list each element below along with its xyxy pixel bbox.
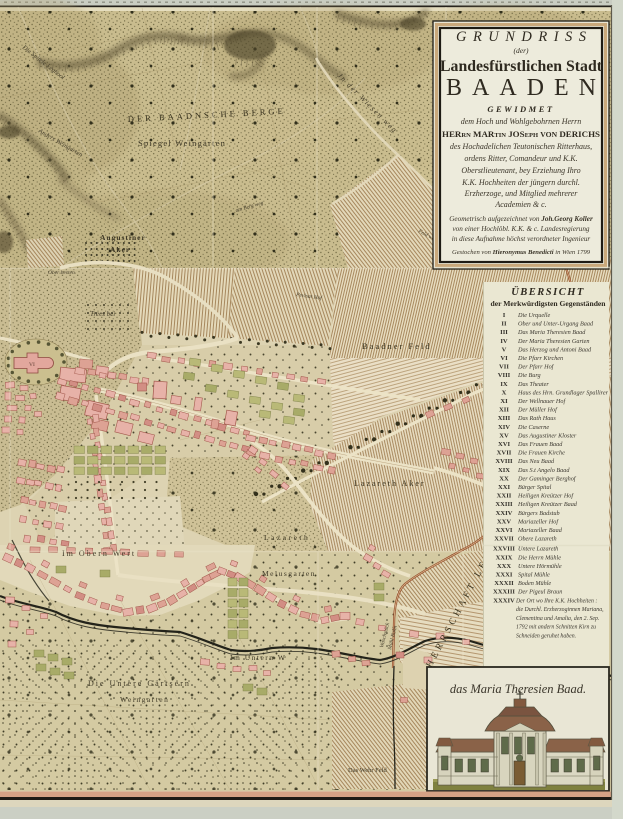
svg-text:Im Untern W: Im Untern W — [230, 653, 286, 662]
svg-text:XIX: XIX — [498, 467, 510, 474]
svg-text:II: II — [501, 321, 507, 328]
svg-text:Das Herzog und Antoni Baad: Das Herzog und Antoni Baad — [517, 346, 592, 353]
svg-text:VIII: VIII — [498, 372, 511, 379]
svg-text:Das Theater: Das Theater — [517, 381, 549, 388]
svg-text:XII: XII — [499, 407, 509, 414]
svg-text:in diese Aufnahme höchst veror: in diese Aufnahme höchst verordneter Ing… — [452, 235, 591, 243]
svg-text:Untere Hörmühle: Untere Hörmühle — [518, 563, 562, 570]
svg-text:ÜBERSICHT: ÜBERSICHT — [511, 285, 585, 298]
svg-text:Mariazeller Baad: Mariazeller Baad — [517, 527, 563, 534]
svg-text:XIII: XIII — [498, 415, 511, 422]
svg-text:Das Wehr Feld: Das Wehr Feld — [348, 767, 387, 774]
svg-text:Spital Mühle: Spital Mühle — [518, 572, 550, 579]
svg-text:Obere Lazareth: Obere Lazareth — [518, 536, 557, 543]
svg-text:Lazareth Aker: Lazareth Aker — [354, 479, 426, 488]
svg-text:Boden Mühle: Boden Mühle — [518, 580, 551, 587]
svg-text:Die Untere Gärtsern: Die Untere Gärtsern — [88, 679, 191, 688]
svg-text:Der Maria Theresien Garten: Der Maria Theresien Garten — [517, 338, 589, 345]
svg-text:IV: IV — [500, 338, 508, 345]
svg-text:III: III — [500, 329, 508, 336]
svg-text:VI: VI — [500, 355, 508, 362]
svg-text:XXI: XXI — [498, 484, 511, 491]
svg-text:Der Gaminger Berghof: Der Gaminger Berghof — [517, 475, 577, 482]
svg-text:(der): (der) — [514, 46, 529, 55]
svg-text:Der Ort wo Ihre K.K. Hochheite: Der Ort wo Ihre K.K. Hochheiten : — [515, 598, 597, 604]
svg-text:XXIX: XXIX — [496, 554, 513, 561]
svg-text:Die Frauen Kirche: Die Frauen Kirche — [517, 450, 565, 457]
svg-text:Baadner Feld: Baadner Feld — [362, 341, 432, 351]
svg-text:XXXIII: XXXIII — [493, 589, 515, 596]
svg-text:Academien & c.: Academien & c. — [494, 200, 546, 209]
svg-text:Der Wellnauer Hof: Der Wellnauer Hof — [517, 398, 566, 405]
svg-text:der Merkwürdigsten Gegenstände: der Merkwürdigsten Gegenständen — [490, 299, 606, 308]
svg-text:Geometrisch aufgezeichnet von: Geometrisch aufgezeichnet von Joh.Georg … — [449, 215, 593, 223]
svg-text:die Durchl. Erzherzoginnen Mar: die Durchl. Erzherzoginnen Mariana, — [516, 607, 604, 613]
svg-text:Landesfürstlichen Stadt: Landesfürstlichen Stadt — [440, 58, 603, 75]
svg-text:XXX: XXX — [497, 563, 512, 570]
svg-text:von einer Hochlöbl. K.K. & c.: von einer Hochlöbl. K.K. & c. Landesregi… — [452, 225, 589, 233]
svg-text:VII: VII — [499, 364, 509, 371]
svg-text:Lazareth: Lazareth — [264, 533, 310, 542]
svg-text:K.K. Hochheiten der jüngern du: K.K. Hochheiten der jüngern durchl. — [461, 178, 580, 187]
svg-text:Heiligen Kreützer Hof: Heiligen Kreützer Hof — [517, 493, 574, 500]
svg-text:Bürgers Badstub: Bürgers Badstub — [518, 510, 560, 517]
svg-text:XXIII: XXIII — [495, 501, 513, 508]
svg-text:1792 mit andern Schnitten Kirn: 1792 mit andern Schnitten Kirn zu — [516, 625, 596, 631]
svg-text:Erzherzoge, und Mitglied mehre: Erzherzoge, und Mitglied mehrerer — [464, 189, 579, 198]
svg-text:Oberstlieutenant, bey Erziehun: Oberstlieutenant, bey Erziehung Ihro — [461, 166, 580, 175]
svg-text:Im Obern Wert: Im Obern Wert — [62, 549, 136, 558]
svg-text:Das Maria Theresien Baad: Das Maria Theresien Baad — [517, 329, 586, 336]
svg-text:Ober und Unter-Urgang Baad: Ober und Unter-Urgang Baad — [518, 321, 594, 328]
svg-text:XV: XV — [499, 432, 509, 439]
svg-text:Schneiden geruhet haben.: Schneiden geruhet haben. — [516, 634, 576, 640]
svg-text:XXXI: XXXI — [496, 572, 513, 579]
svg-text:Untere Lazareth: Untere Lazareth — [518, 546, 558, 553]
svg-text:Das Frauen Baad: Das Frauen Baad — [517, 441, 563, 448]
svg-text:Aker: Aker — [110, 245, 130, 254]
svg-text:VI: VI — [29, 362, 35, 368]
svg-text:XX: XX — [499, 475, 509, 482]
svg-text:XVIII: XVIII — [495, 458, 513, 465]
svg-text:GEWIDMET: GEWIDMET — [487, 104, 554, 114]
svg-text:XXVI: XXVI — [496, 527, 513, 534]
svg-text:Trees bei: Trees bei — [90, 310, 115, 318]
svg-text:Die Pfarr Kirchen: Die Pfarr Kirchen — [517, 355, 563, 362]
svg-text:Der Müller Hof: Der Müller Hof — [517, 407, 558, 414]
svg-text:ordens Ritter, Comandeur und K: ordens Ritter, Comandeur und K.K. — [464, 154, 577, 163]
svg-text:Die Urquelle: Die Urquelle — [517, 312, 550, 319]
svg-text:Gestochen von Hieronymus Bened: Gestochen von Hieronymus Benedicti in Wi… — [452, 249, 591, 256]
svg-text:XXXII: XXXII — [494, 580, 514, 587]
svg-text:XI: XI — [500, 398, 508, 405]
svg-text:Der Pigeul Braun: Der Pigeul Braun — [517, 589, 562, 596]
svg-text:Bürger Spital: Bürger Spital — [518, 484, 552, 491]
svg-text:des Hochadelichen Teutonischen: des Hochadelichen Teutonischen Ritterhau… — [450, 142, 592, 151]
svg-text:GRUNDRISS: GRUNDRISS — [456, 29, 587, 45]
svg-text:Melusgarten: Melusgarten — [262, 569, 316, 578]
svg-text:XXVIII: XXVIII — [493, 546, 515, 553]
svg-text:Die Burg: Die Burg — [517, 372, 541, 379]
svg-text:XXII: XXII — [497, 493, 512, 500]
svg-text:Das Rath Haus: Das Rath Haus — [517, 415, 556, 422]
svg-text:XXV: XXV — [497, 518, 512, 525]
svg-text:dem Hoch und Wohlgebohrnen Her: dem Hoch und Wohlgebohrnen Herrn — [461, 117, 582, 126]
svg-text:Das S.t Angelo Baad: Das S.t Angelo Baad — [517, 467, 570, 474]
svg-text:XXVII: XXVII — [494, 536, 514, 543]
svg-text:Das Neu Baad: Das Neu Baad — [517, 458, 555, 465]
svg-text:X: X — [502, 389, 507, 396]
svg-text:Heiligen Kreützer Baad: Heiligen Kreützer Baad — [517, 501, 578, 508]
svg-text:Die Herrn Mühle: Die Herrn Mühle — [517, 554, 561, 561]
svg-text:Das Augustiner Kloster: Das Augustiner Kloster — [517, 432, 577, 439]
svg-text:XXXIV: XXXIV — [493, 597, 515, 604]
svg-text:Der Pfarr Hof: Der Pfarr Hof — [517, 364, 555, 371]
svg-text:I: I — [503, 312, 506, 319]
svg-text:XXIV: XXIV — [496, 510, 513, 517]
svg-text:Ober berten: Ober berten — [48, 270, 75, 276]
svg-text:Mariazeller Hof: Mariazeller Hof — [517, 518, 559, 525]
svg-text:XVII: XVII — [497, 450, 512, 457]
svg-text:V: V — [502, 346, 507, 353]
svg-text:Augustiner: Augustiner — [100, 233, 146, 242]
svg-text:IX: IX — [500, 381, 508, 388]
svg-text:Haus des Hrn. Grundlager Spall: Haus des Hrn. Grundlager Spallirer — [517, 389, 609, 396]
svg-text:Die Caserne: Die Caserne — [517, 424, 549, 431]
svg-text:XIV: XIV — [498, 424, 510, 431]
svg-text:Clementina und Amalia, den 2.: Clementina und Amalia, den 2. Sep. — [516, 616, 599, 622]
svg-text:XVI: XVI — [498, 441, 511, 448]
svg-text:Weingarten: Weingarten — [120, 695, 169, 704]
